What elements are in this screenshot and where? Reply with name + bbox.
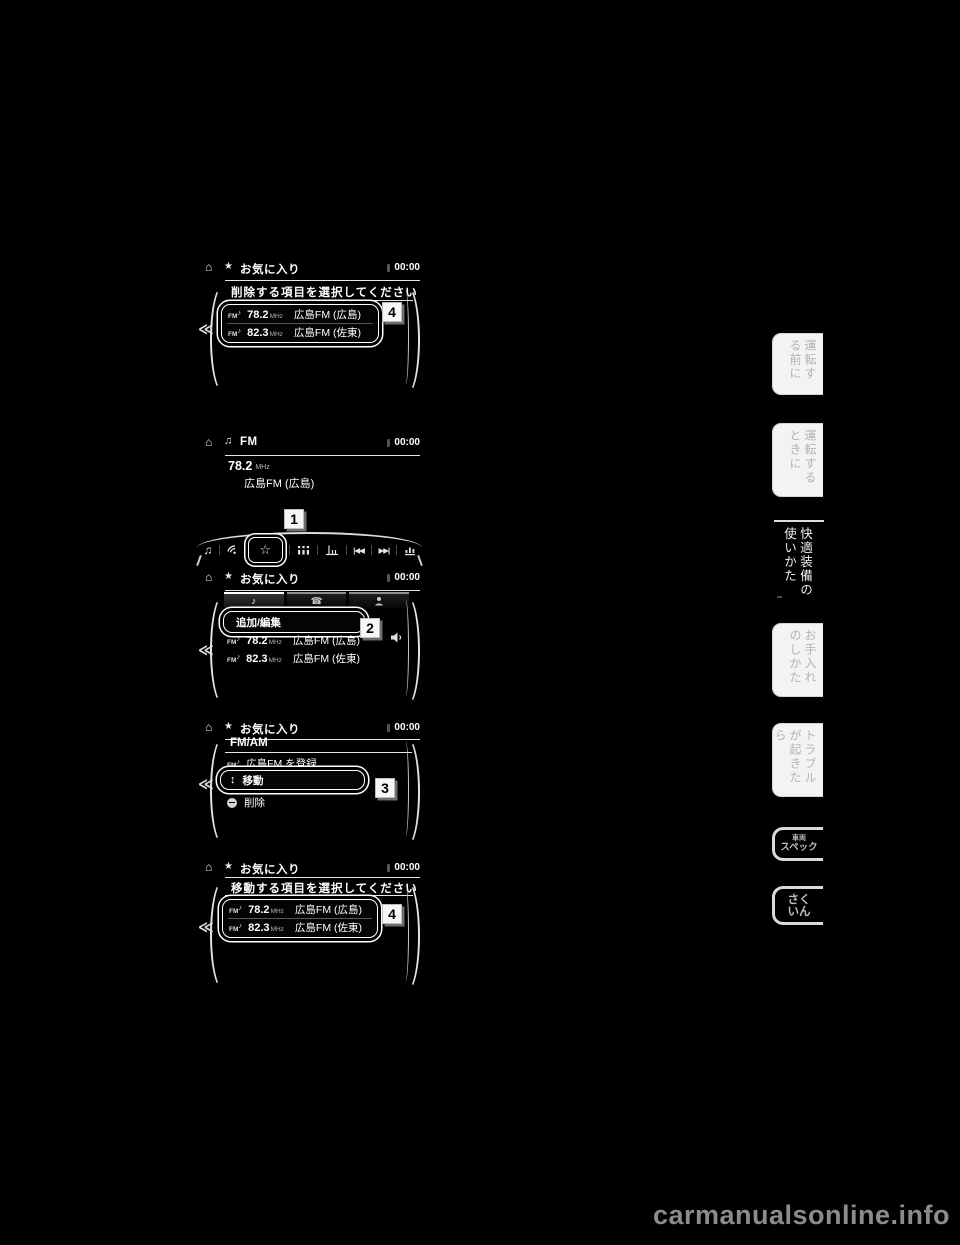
station-row[interactable]: FM♪ 82.3 MHz 広島FM (佐東)	[224, 324, 376, 341]
clock-text: 00:00	[394, 262, 420, 273]
toolbar-divider	[289, 545, 290, 555]
toolbar-divider	[219, 545, 220, 555]
station-row[interactable]: FM♪ 78.2 MHz 広島FM (広島)	[225, 901, 375, 918]
screen-header: ⌂ ★ お気に入り 00:00	[197, 860, 422, 876]
favorites-star-icon: ★	[224, 571, 233, 582]
selection-frame: FM♪ 78.2 MHz 広島FM (広島) FM♪ 82.3 MHz 広島FM…	[222, 899, 378, 938]
toolbar-divider	[317, 545, 318, 555]
person-icon	[374, 596, 384, 606]
radio-antenna-icon[interactable]	[227, 544, 241, 556]
screen-header: ⌂ ★ お気に入り 00:00	[197, 260, 422, 276]
station-frequency: 78.2	[248, 904, 269, 916]
screen-edge-left	[210, 595, 236, 705]
active-chapter-line	[774, 520, 824, 522]
prompt-divider	[225, 300, 413, 301]
index-tab-line2: いん	[775, 906, 823, 918]
favorites-button-frame: ☆	[248, 537, 283, 563]
screen-header: ⌂ ★ お気に入り 00:00	[197, 720, 422, 736]
screen-edge-left	[210, 880, 236, 990]
register-label: 広島FM を登録	[246, 756, 317, 771]
screen-favorites-move: ⌂ ★ お気に入り 00:00 移動する項目を選択してください FM♪ 78.2…	[197, 855, 422, 995]
move-item[interactable]: ↕ 移動	[220, 770, 365, 790]
tune-scale-icon[interactable]	[325, 544, 339, 556]
screen-edge-right	[394, 880, 420, 992]
screen-header: ⌂ ★ お気に入り 00:00	[197, 570, 422, 586]
prompt-divider	[225, 895, 413, 896]
chapter-tab-vehicle-specs[interactable]: 車両 スペック	[772, 827, 823, 861]
music-note-icon: ♪	[251, 596, 256, 607]
screen-title: お気に入り	[240, 721, 300, 737]
station-name: 広島FM (広島)	[293, 633, 360, 648]
frequency-unit: MHz	[255, 464, 269, 473]
clock-text: 00:00	[394, 722, 420, 733]
frequency-unit: MHz	[269, 657, 282, 667]
screen-fm-radio: ⌂ ♫ FM 00:00 78.2 MHz 広島FM (広島) 1	[197, 430, 422, 530]
frequency-display: 78.2 MHz	[228, 459, 270, 473]
toolbar-divider	[346, 545, 347, 555]
status-icon	[387, 864, 390, 872]
chapter-tab-trouble[interactable]: トラブルが起きたら	[772, 723, 823, 797]
delete-prompt: 削除する項目を選択してください	[231, 284, 418, 300]
tab-phone[interactable]: ☎	[287, 592, 347, 608]
seek-forward-icon[interactable]: ▶▶|	[378, 546, 389, 555]
screen-header: ⌂ ♫ FM 00:00	[197, 435, 422, 451]
screen-favorites-menu: ⌂ ★ お気に入り 00:00 FM/AM FM♪ 広島FM を登録 ↕ 移動 …	[197, 715, 422, 850]
index-tab-line1: さく	[775, 894, 823, 906]
status-icon	[387, 264, 390, 272]
chapter-tab-index[interactable]: さく いん	[772, 886, 823, 925]
clock: 00:00	[387, 437, 420, 448]
audio-levels-icon[interactable]	[404, 544, 416, 556]
screen-edge-left	[210, 285, 236, 393]
header-divider	[225, 590, 420, 591]
fm-icon-note: ♪	[238, 903, 242, 912]
band-divider	[225, 752, 412, 753]
frequency-unit: MHz	[270, 331, 283, 341]
clock: 00:00	[387, 572, 420, 583]
move-label: 移動	[243, 773, 264, 788]
clock-text: 00:00	[394, 572, 420, 583]
move-prompt: 移動する項目を選択してください	[231, 880, 418, 896]
status-icon	[387, 724, 390, 732]
screen-edge-left	[210, 737, 236, 845]
station-name: 広島FM (広島)	[295, 902, 362, 917]
phone-icon: ☎	[311, 596, 323, 607]
screen-title: FM	[240, 436, 258, 448]
station-frequency: 78.2	[247, 309, 268, 321]
fm-icon-note: ♪	[236, 652, 240, 661]
screen-favorites-delete: ⌂ ★ お気に入り 00:00 削除する項目を選択してください FM♪ 78.2…	[197, 255, 422, 398]
screen-favorites-list: ⌂ ★ お気に入り 00:00 ♪ ☎ 追加/編集 FM♪ 78.2 MHz 広…	[197, 565, 422, 710]
current-frequency: 78.2	[228, 459, 252, 473]
fm-icon-note: ♪	[237, 326, 241, 335]
header-divider	[225, 280, 420, 281]
station-row[interactable]: FM♪ 82.3 MHz 広島FM (佐東)	[225, 919, 375, 936]
step-badge: 1	[284, 509, 304, 529]
fm-icon-note: ♪	[236, 634, 240, 643]
chapter-tab-before-driving[interactable]: 運転する前に	[772, 333, 823, 395]
favorites-star-icon[interactable]: ☆	[259, 542, 271, 558]
favorites-star-icon: ★	[224, 721, 233, 732]
fm-icon-note: ♪	[236, 757, 240, 766]
header-divider	[225, 877, 420, 878]
clock: 00:00	[387, 722, 420, 733]
frequency-unit: MHz	[269, 639, 282, 649]
step-badge: 3	[375, 778, 395, 798]
clock: 00:00	[387, 262, 420, 273]
toolbar-divider	[371, 545, 372, 555]
station-name: 広島FM (佐東)	[294, 325, 361, 340]
toolbar-icons-row: ♫ ☆ |◀◀ ▶▶|	[200, 536, 419, 564]
chapter-tab-maintenance[interactable]: お手入れのしかた	[772, 623, 823, 697]
music-note-icon: ♫	[224, 435, 232, 447]
watermark: carmanualsonline.info	[653, 1200, 950, 1231]
station-frequency: 78.2	[246, 635, 267, 647]
screen-title: お気に入り	[240, 571, 300, 587]
home-icon[interactable]: ⌂	[205, 260, 212, 274]
screen-title: お気に入り	[240, 261, 300, 277]
home-icon[interactable]: ⌂	[205, 860, 212, 874]
favorites-category-tabs: ♪ ☎	[224, 592, 409, 608]
music-source-icon[interactable]: ♫	[203, 543, 212, 557]
frequency-unit: MHz	[270, 313, 283, 323]
tab-audio[interactable]: ♪	[224, 592, 284, 608]
station-name: 広島FM (佐東)	[295, 920, 362, 935]
clock-text: 00:00	[394, 862, 420, 873]
station-row[interactable]: FM♪ 82.3 MHz 広島FM (佐東)	[223, 650, 391, 667]
current-station-name: 広島FM (広島)	[244, 475, 314, 491]
status-icon	[387, 439, 390, 447]
frequency-unit: MHz	[271, 926, 284, 936]
toolbar-divider	[396, 545, 397, 555]
chapter-tab-comfort-equipment: 快適装備の使いかた	[781, 527, 813, 601]
station-frequency: 82.3	[247, 327, 268, 339]
selection-frame: FM♪ 78.2 MHz 広島FM (広島) FM♪ 82.3 MHz 広島FM…	[221, 304, 379, 343]
add-edit-label: 追加/編集	[236, 615, 281, 630]
station-name: 広島FM (広島)	[294, 307, 361, 322]
fm-icon-note: ♪	[237, 308, 241, 317]
step-badge: 2	[360, 618, 380, 638]
screen-edge-right	[394, 285, 420, 395]
favorites-star-icon: ★	[224, 861, 233, 872]
favorites-star-icon: ★	[224, 261, 233, 272]
station-name: 広島FM (佐東)	[293, 651, 360, 666]
add-edit-button[interactable]: 追加/編集	[223, 611, 365, 633]
home-icon[interactable]: ⌂	[205, 570, 212, 584]
manual-page: ⌂ ★ お気に入り 00:00 削除する項目を選択してください FM♪ 78.2…	[0, 0, 960, 1245]
screen-edge-right	[394, 737, 420, 847]
clock-text: 00:00	[394, 437, 420, 448]
spec-tab-line2: スペック	[775, 843, 823, 853]
frequency-unit: MHz	[271, 908, 284, 918]
audio-toolbar: ♫ ☆ |◀◀ ▶▶|	[197, 530, 422, 566]
station-frequency: 82.3	[246, 653, 267, 665]
chapter-tab-when-driving[interactable]: 運転するときに	[772, 423, 823, 497]
band-label: FM/AM	[230, 737, 268, 749]
station-frequency: 82.3	[248, 922, 269, 934]
header-divider	[225, 455, 420, 456]
fm-icon-note: ♪	[238, 921, 242, 930]
register-station-item[interactable]: FM♪ 広島FM を登録	[227, 756, 317, 771]
clock: 00:00	[387, 862, 420, 873]
delete-label: 削除	[244, 795, 265, 810]
status-icon	[387, 574, 390, 582]
station-row[interactable]: FM♪ 78.2 MHz 広島FM (広島)	[224, 306, 376, 323]
home-icon[interactable]: ⌂	[205, 435, 212, 449]
home-icon[interactable]: ⌂	[205, 720, 212, 734]
preset-list-icon[interactable]	[297, 544, 310, 556]
active-chapter-tick	[777, 596, 782, 598]
screen-edge-right	[394, 595, 420, 707]
screen-title: お気に入り	[240, 861, 300, 877]
seek-back-icon[interactable]: |◀◀	[353, 546, 364, 555]
